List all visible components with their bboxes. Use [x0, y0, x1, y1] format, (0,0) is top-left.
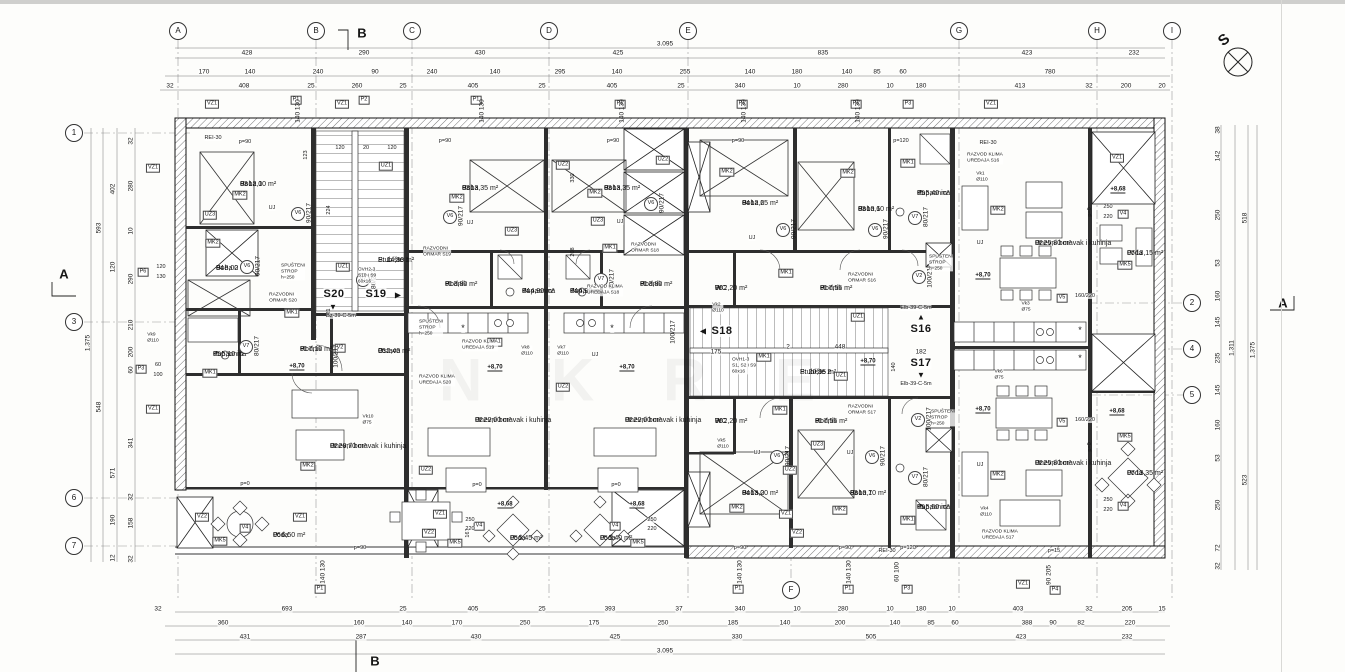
floor-plan: N K R E ABCDEFGHI 1367 245 A A B B S 03S… — [0, 0, 1345, 672]
scan-edge-top — [0, 0, 1345, 4]
paper-edge-right — [1281, 0, 1282, 672]
floorplan-geometry — [0, 0, 1345, 672]
